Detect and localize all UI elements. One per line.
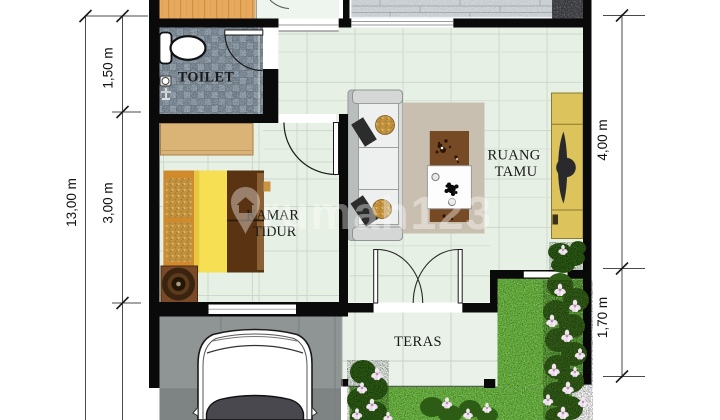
- svg-text:4,00 m: 4,00 m: [595, 119, 610, 160]
- svg-text:1,70 m: 1,70 m: [595, 297, 610, 338]
- svg-text:TOILET: TOILET: [178, 70, 235, 86]
- svg-text:rumah123: rumah123: [261, 187, 493, 239]
- svg-text:RUANG: RUANG: [487, 148, 540, 164]
- svg-text:13,00 m: 13,00 m: [64, 178, 79, 227]
- svg-text:TAMU: TAMU: [495, 164, 538, 180]
- svg-text:3,00 m: 3,00 m: [101, 182, 116, 223]
- svg-text:1,50 m: 1,50 m: [101, 47, 116, 88]
- svg-text:TERAS: TERAS: [394, 334, 442, 350]
